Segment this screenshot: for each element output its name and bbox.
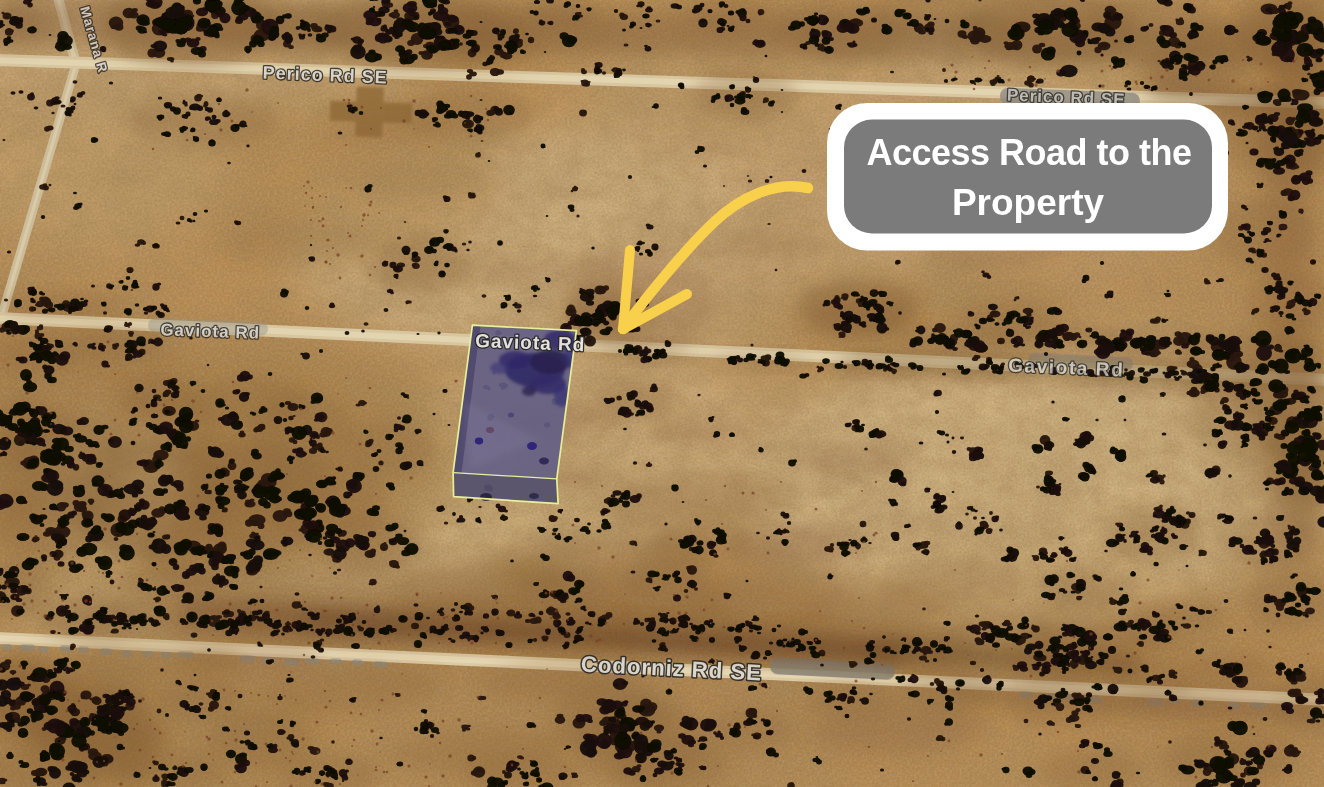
svg-text:Gaviota Rd: Gaviota Rd [475,330,586,355]
svg-text:Gaviota Rd: Gaviota Rd [160,320,260,342]
svg-text:Property: Property [952,182,1105,223]
svg-text:Access Road to the: Access Road to the [866,132,1191,173]
